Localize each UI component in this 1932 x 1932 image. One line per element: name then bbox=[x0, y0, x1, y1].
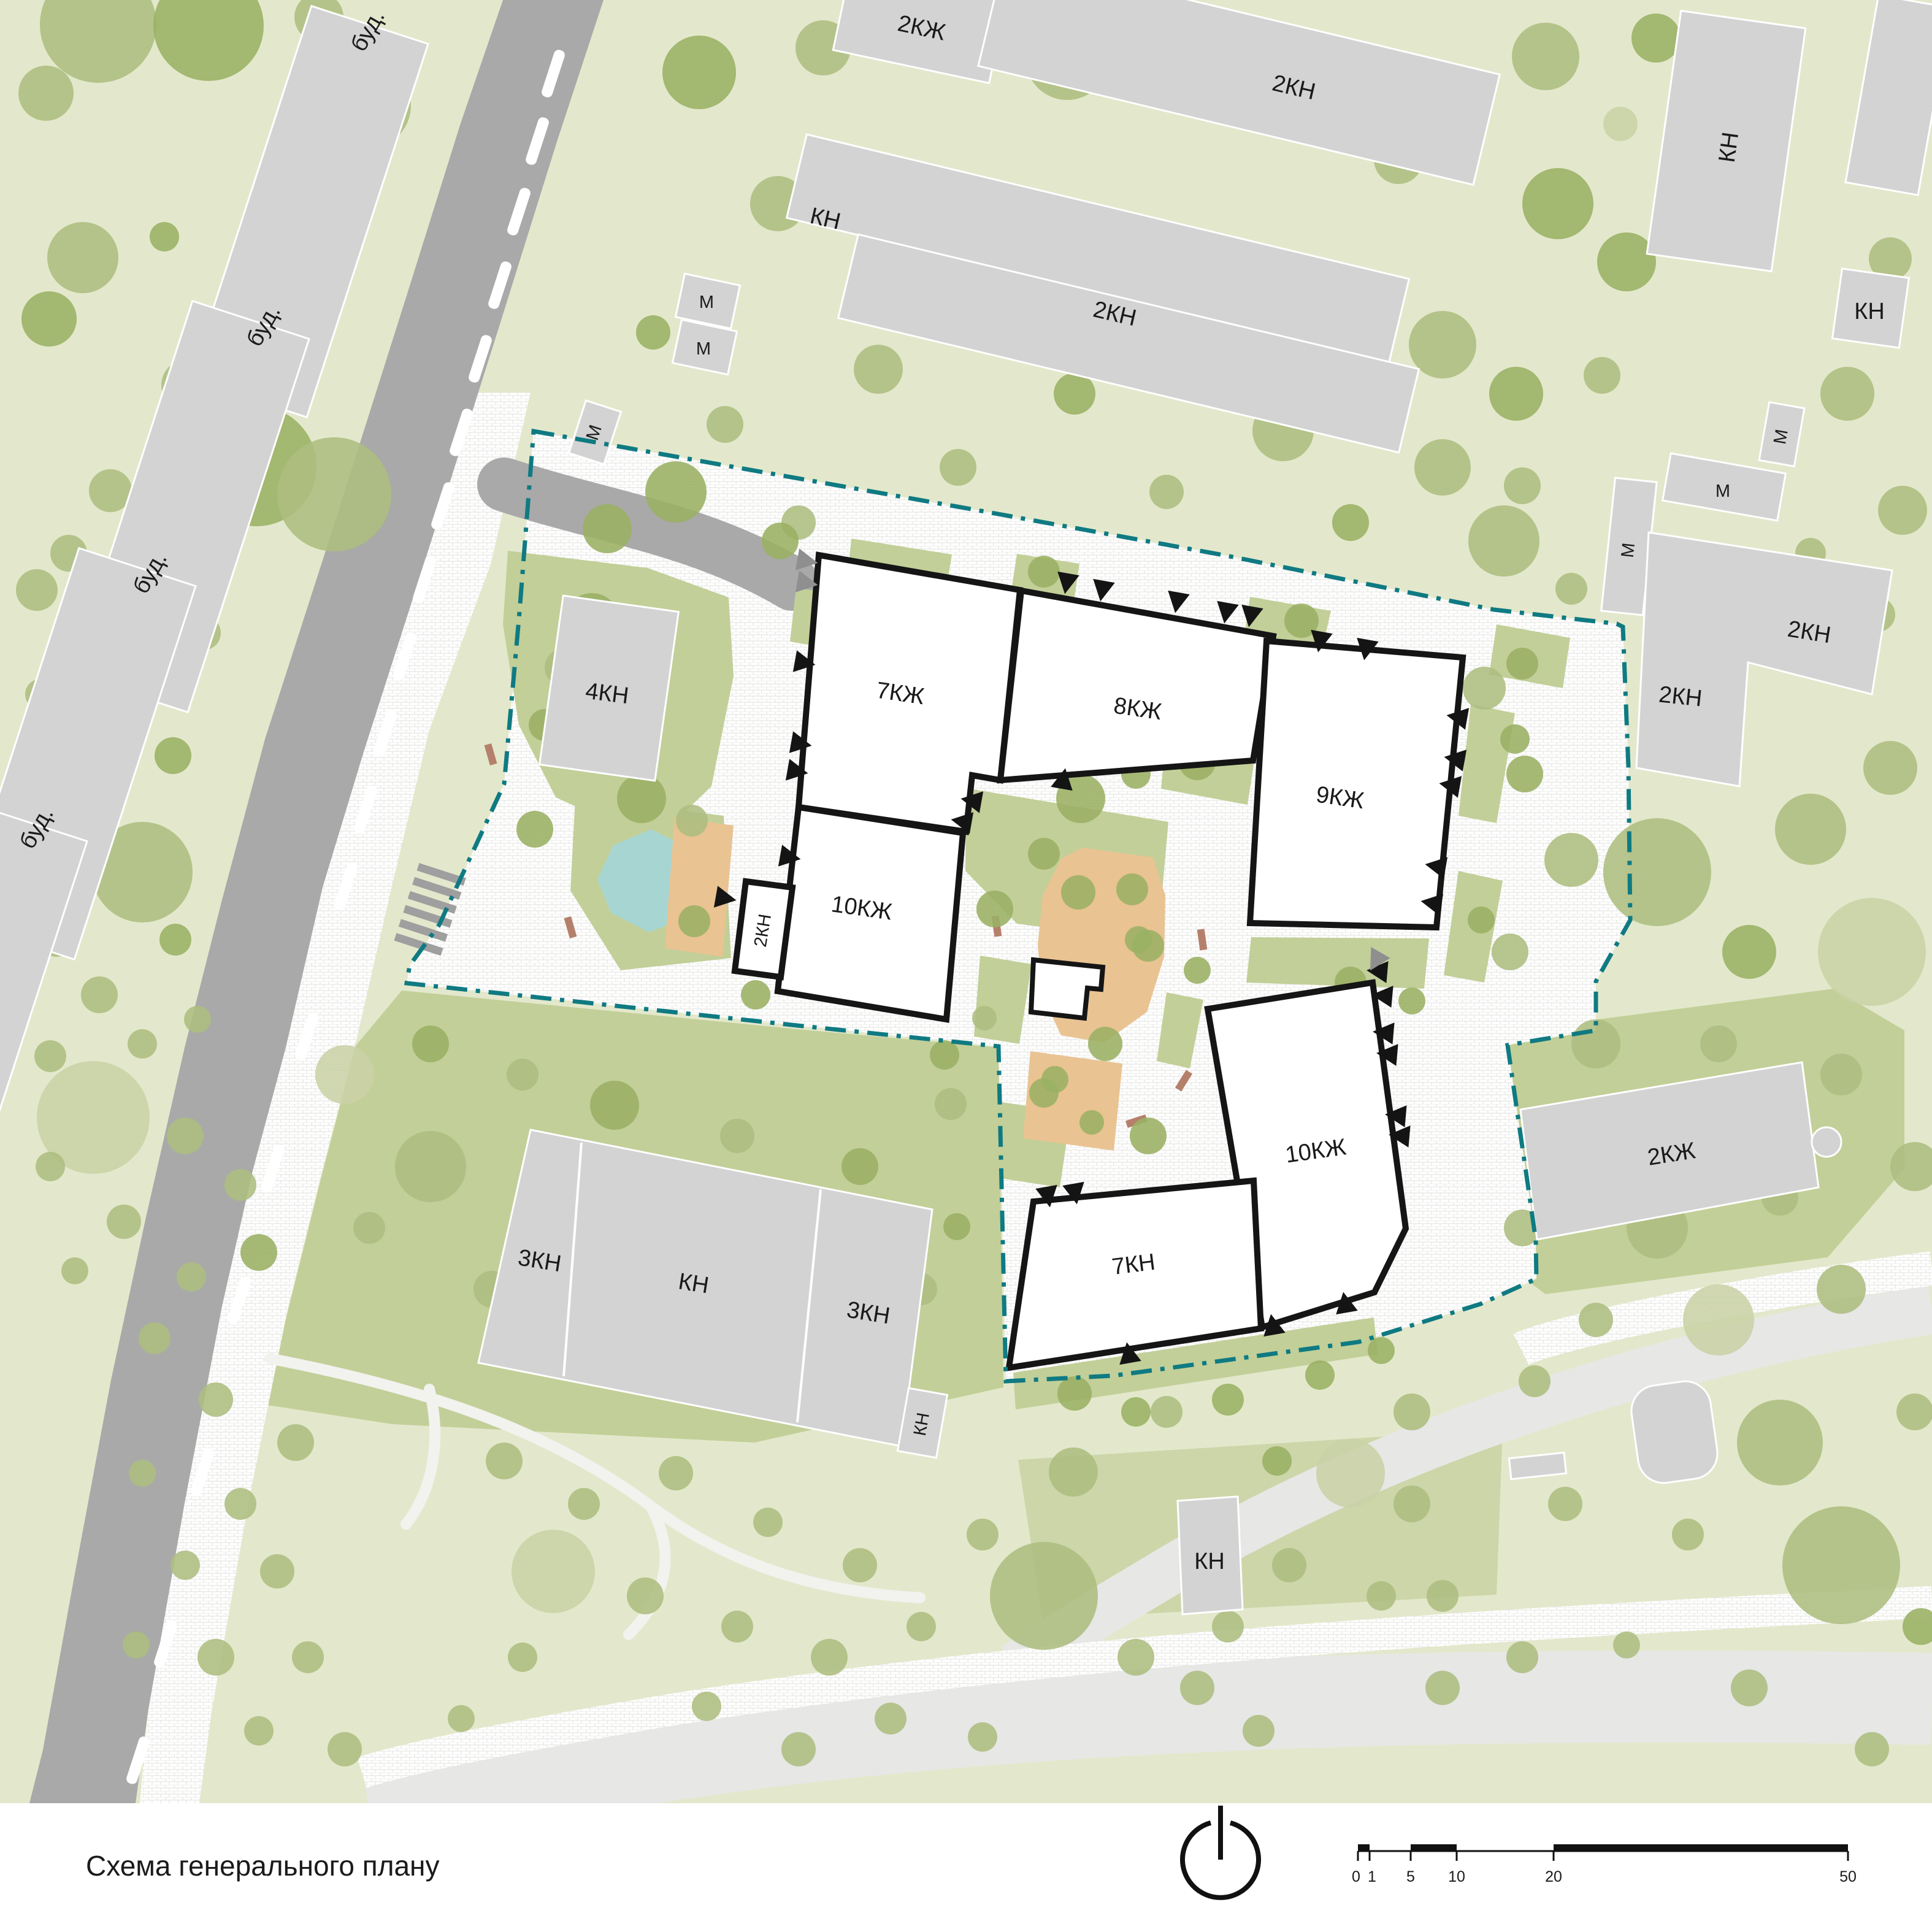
tree bbox=[1613, 1631, 1640, 1658]
scale-label: 20 bbox=[1545, 1868, 1562, 1885]
tree bbox=[16, 569, 58, 611]
building-label: КН bbox=[1854, 299, 1885, 324]
tree bbox=[1579, 1303, 1613, 1337]
tree bbox=[1603, 818, 1711, 926]
tree bbox=[1125, 926, 1152, 953]
tree bbox=[1522, 168, 1593, 239]
tree bbox=[1817, 1265, 1866, 1314]
tree bbox=[260, 1554, 294, 1589]
tree bbox=[516, 811, 553, 848]
tree bbox=[1427, 1580, 1459, 1612]
tree bbox=[1700, 1025, 1737, 1062]
tree bbox=[107, 1205, 141, 1239]
tree bbox=[1855, 1732, 1889, 1766]
tree bbox=[1782, 1506, 1900, 1624]
tree bbox=[292, 1641, 324, 1673]
tree bbox=[224, 1169, 256, 1201]
tree bbox=[47, 222, 118, 293]
building-label: М bbox=[1618, 542, 1639, 558]
tree bbox=[1818, 898, 1926, 1006]
tree bbox=[1393, 1485, 1430, 1522]
tree bbox=[1631, 13, 1681, 63]
tree bbox=[1272, 1548, 1306, 1582]
tree bbox=[1079, 1110, 1104, 1135]
tree bbox=[1878, 486, 1927, 535]
tree bbox=[811, 1639, 848, 1676]
tree bbox=[1243, 1715, 1275, 1747]
building-label: 4КН bbox=[584, 678, 630, 709]
tree bbox=[81, 976, 118, 1013]
tree bbox=[184, 1006, 211, 1033]
building-small bbox=[1509, 1452, 1566, 1479]
tree bbox=[943, 1213, 970, 1240]
tree bbox=[1504, 467, 1541, 504]
tree bbox=[197, 1639, 234, 1676]
tree bbox=[1121, 1397, 1151, 1427]
tree bbox=[123, 1631, 150, 1658]
tree bbox=[167, 1117, 204, 1154]
tree bbox=[967, 1519, 999, 1551]
tree bbox=[1506, 1641, 1538, 1673]
tree bbox=[1149, 475, 1184, 509]
tree bbox=[1500, 724, 1530, 754]
tree bbox=[507, 1059, 539, 1091]
tree bbox=[662, 36, 736, 109]
tree bbox=[1512, 23, 1579, 90]
tree bbox=[1041, 1066, 1068, 1093]
building-label: М bbox=[696, 339, 711, 359]
tree bbox=[636, 315, 670, 350]
tree bbox=[508, 1643, 537, 1672]
tree bbox=[875, 1703, 907, 1735]
tree bbox=[1775, 794, 1846, 865]
tree bbox=[1316, 1439, 1385, 1508]
tree bbox=[244, 1716, 274, 1746]
tree bbox=[1088, 1027, 1122, 1061]
tree bbox=[627, 1577, 664, 1614]
building-label: М bbox=[699, 293, 714, 312]
tree bbox=[1683, 1284, 1754, 1355]
tree bbox=[1180, 1671, 1214, 1705]
building-round bbox=[1628, 1378, 1720, 1487]
tree bbox=[21, 291, 77, 347]
tree bbox=[61, 1257, 88, 1284]
tree bbox=[277, 437, 391, 551]
tree bbox=[1555, 573, 1587, 605]
tree bbox=[1151, 1396, 1183, 1428]
tree bbox=[1506, 756, 1543, 792]
tree bbox=[617, 774, 666, 823]
tree bbox=[968, 1722, 997, 1752]
tree bbox=[1332, 504, 1369, 541]
tree bbox=[1519, 1365, 1551, 1397]
tree bbox=[781, 1732, 816, 1766]
tree bbox=[199, 1382, 233, 1417]
tree bbox=[1028, 556, 1060, 588]
tree bbox=[1506, 648, 1538, 680]
tree bbox=[854, 345, 903, 394]
tree bbox=[1414, 439, 1471, 496]
tree bbox=[1672, 1519, 1704, 1551]
tree bbox=[159, 924, 191, 956]
building-label: 7КН bbox=[1111, 1249, 1157, 1280]
scale-bar-segment bbox=[1411, 1844, 1457, 1851]
tree bbox=[1603, 107, 1638, 141]
tree bbox=[972, 1006, 997, 1030]
tree bbox=[1061, 875, 1095, 910]
scale-label: 5 bbox=[1406, 1868, 1415, 1885]
scale-label: 1 bbox=[1368, 1868, 1376, 1885]
building-9kzh bbox=[1250, 641, 1463, 927]
tree bbox=[940, 449, 976, 486]
tree bbox=[1117, 1639, 1154, 1676]
tree bbox=[1212, 1384, 1244, 1416]
tree bbox=[1489, 367, 1543, 421]
tree bbox=[976, 891, 1013, 927]
tree bbox=[240, 1234, 277, 1271]
tree bbox=[1057, 1376, 1092, 1411]
tree bbox=[18, 66, 74, 121]
tree bbox=[1262, 1446, 1292, 1476]
tree bbox=[1597, 232, 1656, 291]
building-label: КН bbox=[910, 1411, 933, 1438]
tree bbox=[1049, 1447, 1098, 1497]
tree bbox=[1393, 1393, 1430, 1430]
scale-bar-segment bbox=[1358, 1844, 1370, 1851]
tree bbox=[1212, 1611, 1244, 1643]
tree bbox=[1896, 1393, 1932, 1430]
building-label: М bbox=[1715, 481, 1730, 501]
tree bbox=[1425, 1671, 1460, 1705]
tree bbox=[1731, 1669, 1768, 1706]
tree bbox=[1130, 1117, 1167, 1154]
tree bbox=[1028, 838, 1060, 870]
tree bbox=[1722, 925, 1776, 979]
tree bbox=[353, 1212, 385, 1244]
tree bbox=[1468, 907, 1495, 933]
tree bbox=[1305, 1360, 1335, 1390]
tree bbox=[1468, 505, 1539, 577]
tree bbox=[171, 1551, 200, 1580]
tree bbox=[395, 1131, 466, 1202]
tree bbox=[1820, 1054, 1862, 1095]
tree bbox=[676, 805, 708, 837]
tree bbox=[841, 1148, 878, 1185]
tree bbox=[36, 1152, 65, 1181]
tree bbox=[935, 1088, 967, 1120]
tree bbox=[907, 1612, 936, 1641]
tree bbox=[659, 1456, 693, 1490]
tree bbox=[155, 737, 191, 774]
tree bbox=[1863, 741, 1917, 795]
tree bbox=[1116, 873, 1148, 905]
tree bbox=[645, 461, 707, 523]
site-plan-page: буд. буд. буд. буд. 2КЖ 2КН КН 2КН М М М… bbox=[0, 0, 1932, 1932]
tree bbox=[129, 1460, 156, 1487]
tree bbox=[224, 1488, 256, 1520]
tree bbox=[1492, 933, 1528, 970]
tree bbox=[1368, 1337, 1395, 1364]
tree bbox=[1820, 367, 1874, 421]
tree bbox=[315, 1045, 374, 1104]
tree bbox=[707, 406, 743, 443]
tree bbox=[1184, 957, 1211, 984]
tree bbox=[128, 1029, 157, 1059]
tree bbox=[753, 1508, 783, 1537]
building-label: КН bbox=[677, 1268, 711, 1298]
tree bbox=[328, 1732, 362, 1766]
tree bbox=[721, 1611, 753, 1643]
tree bbox=[1367, 1581, 1396, 1611]
tree bbox=[590, 1081, 639, 1130]
tree bbox=[583, 504, 632, 553]
tree bbox=[1584, 357, 1620, 394]
tree bbox=[1398, 987, 1425, 1014]
tree bbox=[692, 1692, 721, 1721]
page-title: Схема генерального плану bbox=[86, 1850, 439, 1882]
building-2kzh-annex bbox=[1812, 1127, 1841, 1157]
tree bbox=[678, 905, 710, 937]
tree bbox=[762, 523, 799, 559]
tree bbox=[1548, 1487, 1582, 1521]
tree bbox=[486, 1443, 523, 1479]
tree bbox=[34, 1040, 66, 1072]
tree bbox=[1544, 833, 1598, 887]
tree bbox=[177, 1262, 206, 1292]
site-plan-drawing: буд. буд. буд. буд. 2КЖ 2КН КН 2КН М М М… bbox=[0, 0, 1932, 1932]
scale-label: 0 bbox=[1352, 1868, 1360, 1885]
tree bbox=[1463, 667, 1506, 710]
tree bbox=[412, 1025, 449, 1062]
tree bbox=[843, 1548, 877, 1582]
scale-bar-segment bbox=[1554, 1844, 1848, 1851]
building-label: КН bbox=[1194, 1549, 1225, 1574]
tree bbox=[277, 1424, 314, 1461]
tree bbox=[990, 1542, 1098, 1650]
scale-label: 50 bbox=[1839, 1868, 1857, 1885]
tree bbox=[150, 222, 179, 251]
tree bbox=[139, 1322, 171, 1354]
tree bbox=[1737, 1400, 1823, 1485]
building-label: КН bbox=[1714, 131, 1744, 164]
tree bbox=[448, 1705, 475, 1732]
tree bbox=[512, 1530, 595, 1613]
tree bbox=[1571, 1019, 1620, 1068]
tree bbox=[741, 980, 770, 1010]
tree bbox=[720, 1119, 754, 1153]
scale-label: 10 bbox=[1448, 1868, 1465, 1885]
tree bbox=[1054, 373, 1095, 415]
tree bbox=[930, 1040, 959, 1070]
building-label: 2КН bbox=[1658, 681, 1704, 711]
tree bbox=[568, 1488, 600, 1520]
